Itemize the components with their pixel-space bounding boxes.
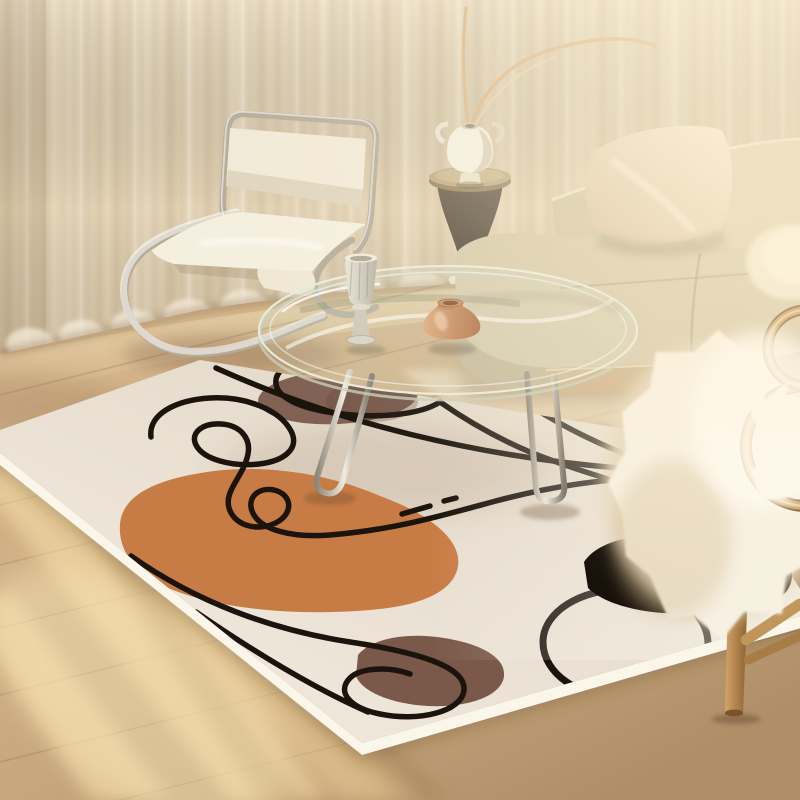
sunlight-glow-side [0, 0, 800, 800]
scene-canvas [0, 0, 800, 800]
living-room-scene [0, 0, 800, 800]
